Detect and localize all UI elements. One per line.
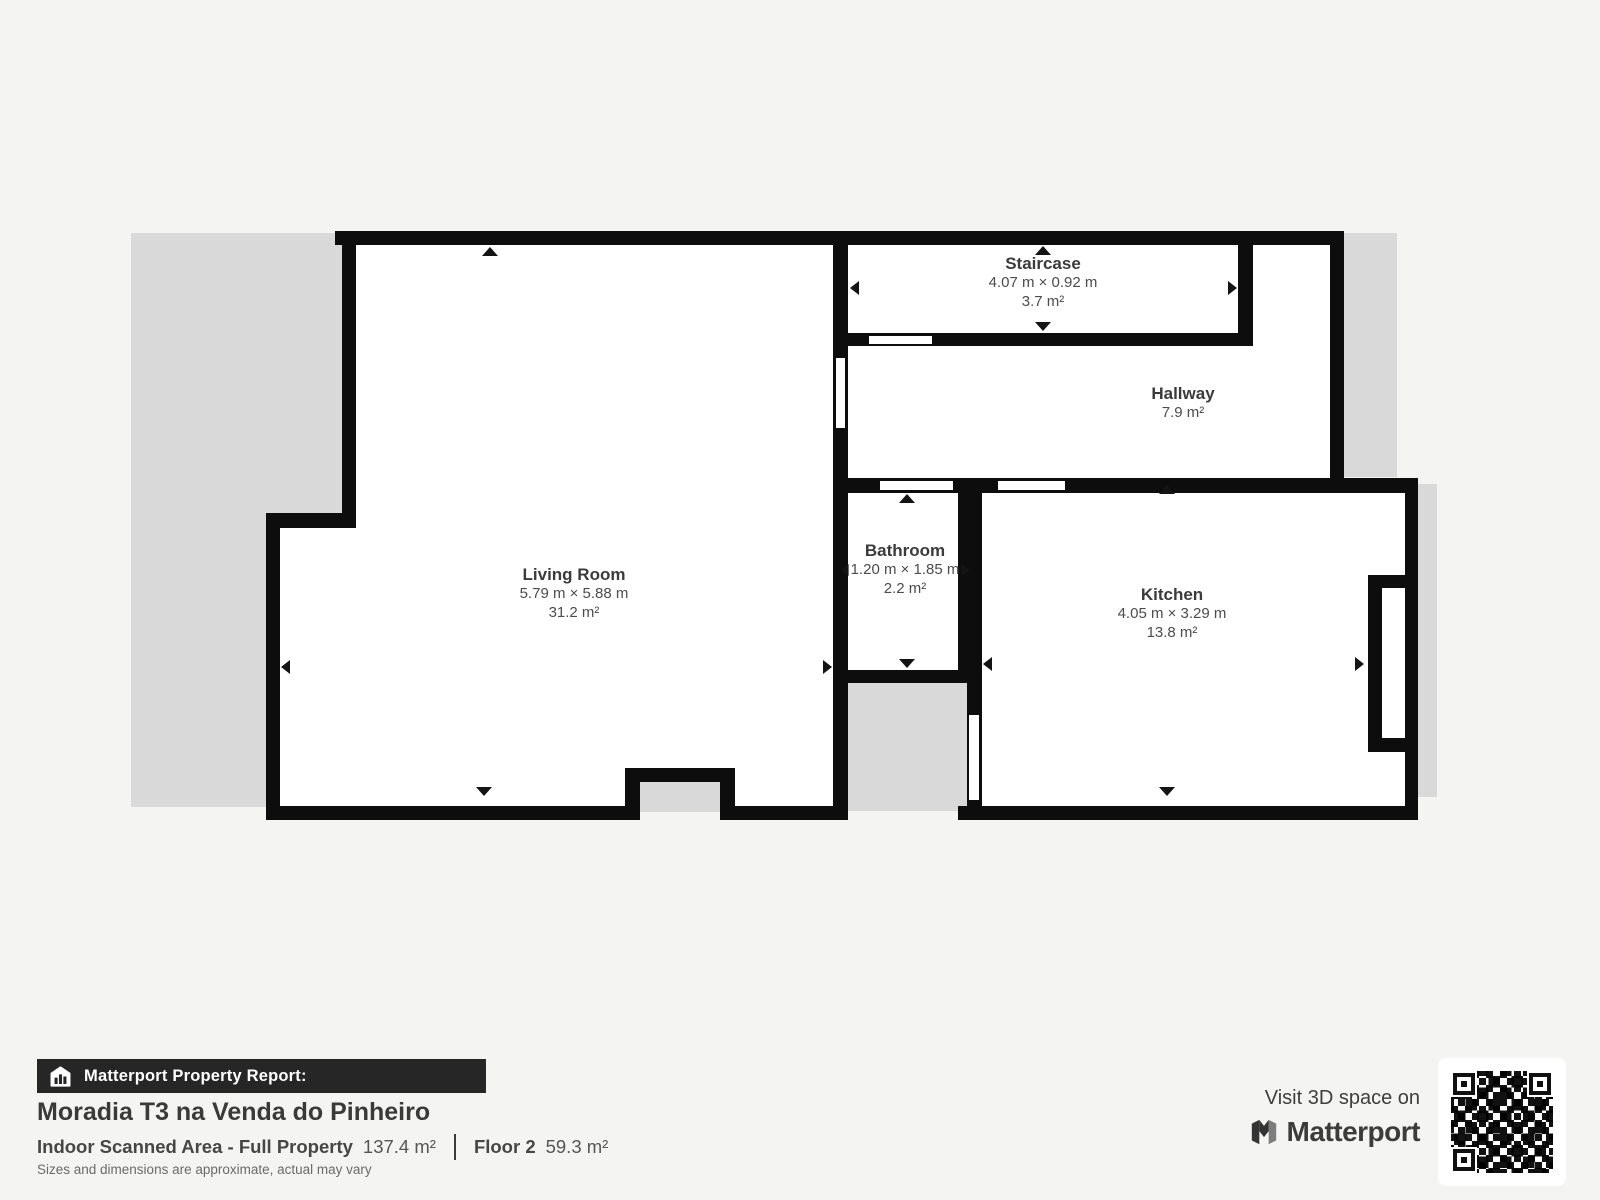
- outdoor-area-left-lower: [131, 513, 266, 807]
- room-area: 13.8 m²: [1118, 623, 1227, 642]
- living-room-area-west: [280, 528, 360, 806]
- dim-arrow-staircase-south: [1035, 322, 1051, 331]
- room-area: 3.7 m²: [989, 292, 1098, 311]
- scanned-area-value: 137.4 m²: [363, 1136, 436, 1158]
- door-staircase: [869, 336, 932, 344]
- wall-living-west-lower: [266, 513, 280, 820]
- dim-arrow-bathroom-west: [841, 564, 849, 576]
- outdoor-area-right-upper: [1344, 233, 1397, 477]
- room-name: Living Room: [520, 565, 629, 584]
- dim-arrow-kitchen-south: [1159, 787, 1175, 796]
- living-room-label: Living Room 5.79 m × 5.88 m 31.2 m²: [520, 565, 629, 622]
- dim-arrow-staircase-east: [1228, 281, 1237, 295]
- staircase-label: Staircase 4.07 m × 0.92 m 3.7 m²: [989, 254, 1098, 311]
- dim-arrow-living-west: [281, 660, 290, 674]
- room-dims: 4.07 m × 0.92 m: [989, 273, 1098, 292]
- kitchen-closet-inner: [1382, 588, 1405, 738]
- visit-3d-text: Visit 3D space on: [1130, 1086, 1420, 1110]
- matterport-logo-icon: [1249, 1117, 1279, 1147]
- outdoor-area-left-upper: [131, 233, 342, 515]
- wall-hallway-east: [1330, 231, 1344, 492]
- hallway-area: [848, 346, 1330, 478]
- wall-kitchen-south: [958, 806, 1418, 820]
- report-bar-label: Matterport Property Report:: [84, 1067, 307, 1086]
- hallway-label: Hallway 7.9 m²: [1151, 384, 1214, 422]
- room-area: 31.2 m²: [520, 603, 629, 622]
- room-dims: 4.05 m × 3.29 m: [1118, 604, 1227, 623]
- bathroom-label: Bathroom 1.20 m × 1.85 m 2.2 m²: [841, 541, 970, 598]
- room-name: Hallway: [1151, 384, 1214, 403]
- wall-living-south-east: [720, 806, 848, 820]
- wall-living-west-upper: [342, 231, 356, 528]
- door-kitchen: [998, 481, 1065, 490]
- dim-arrow-kitchen-north: [1159, 485, 1175, 494]
- room-dims: 1.20 m × 1.85 m: [841, 560, 970, 579]
- dim-arrow-bathroom-east: [961, 564, 969, 576]
- matterport-logo: Matterport: [1130, 1116, 1420, 1148]
- window-living-east: [836, 358, 845, 428]
- wall-chimney-top: [625, 768, 735, 782]
- wall-staircase-east: [1238, 245, 1253, 333]
- room-name: Bathroom: [841, 541, 970, 560]
- dim-arrow-staircase-west: [850, 281, 859, 295]
- kitchen-label: Kitchen 4.05 m × 3.29 m 13.8 m²: [1118, 585, 1227, 642]
- living-room-area: [356, 245, 833, 806]
- wall-living-east: [833, 231, 848, 820]
- qr-finder-bottom-left: [1451, 1147, 1477, 1173]
- scanned-area-label: Indoor Scanned Area - Full Property: [37, 1136, 353, 1158]
- dim-arrow-kitchen-west: [983, 657, 992, 671]
- void-below-bathroom: [848, 683, 967, 811]
- disclaimer-text: Sizes and dimensions are approximate, ac…: [37, 1162, 372, 1177]
- floor-label: Floor 2: [474, 1136, 536, 1158]
- qr-finder-top-left: [1451, 1071, 1477, 1097]
- qr-finder-top-right: [1527, 1071, 1553, 1097]
- window-kitchen-west: [969, 715, 979, 800]
- room-area: 7.9 m²: [1151, 403, 1214, 422]
- floor-value: 59.3 m²: [546, 1136, 609, 1158]
- wall-living-south-west: [266, 806, 640, 820]
- dim-arrow-living-east: [823, 660, 832, 674]
- dim-arrow-living-north: [482, 247, 498, 256]
- hallway-area-east-wing: [1253, 245, 1330, 349]
- room-area: 2.2 m²: [841, 579, 970, 598]
- dim-arrow-bathroom-north: [899, 494, 915, 503]
- qr-code: [1451, 1071, 1553, 1173]
- dim-arrow-kitchen-east: [1355, 657, 1364, 671]
- report-header-bar: Matterport Property Report:: [37, 1059, 486, 1093]
- divider: [454, 1134, 456, 1160]
- room-dims: 5.79 m × 5.88 m: [520, 584, 629, 603]
- property-title: Moradia T3 na Venda do Pinheiro: [37, 1098, 430, 1127]
- qr-code-card: [1438, 1058, 1566, 1186]
- matterport-promo: Visit 3D space on Matterport: [1130, 1086, 1420, 1148]
- dim-arrow-living-south: [476, 787, 492, 796]
- wall-bathroom-south: [833, 670, 982, 683]
- room-name: Kitchen: [1118, 585, 1227, 604]
- floor-plan-page: Staircase 4.07 m × 0.92 m 3.7 m² Hallway…: [0, 0, 1600, 1200]
- kitchen-area: [982, 493, 1405, 806]
- chimney-recess: [640, 782, 720, 812]
- door-bathroom: [880, 481, 953, 490]
- property-report-icon: [49, 1065, 72, 1088]
- room-dims-text: 1.20 m × 1.85 m: [851, 560, 960, 579]
- area-info-line: Indoor Scanned Area - Full Property 137.…: [37, 1134, 608, 1160]
- matterport-wordmark: Matterport: [1287, 1116, 1420, 1148]
- dim-arrow-bathroom-south: [899, 659, 915, 668]
- room-name: Staircase: [989, 254, 1098, 273]
- outdoor-area-right-lower: [1418, 484, 1437, 797]
